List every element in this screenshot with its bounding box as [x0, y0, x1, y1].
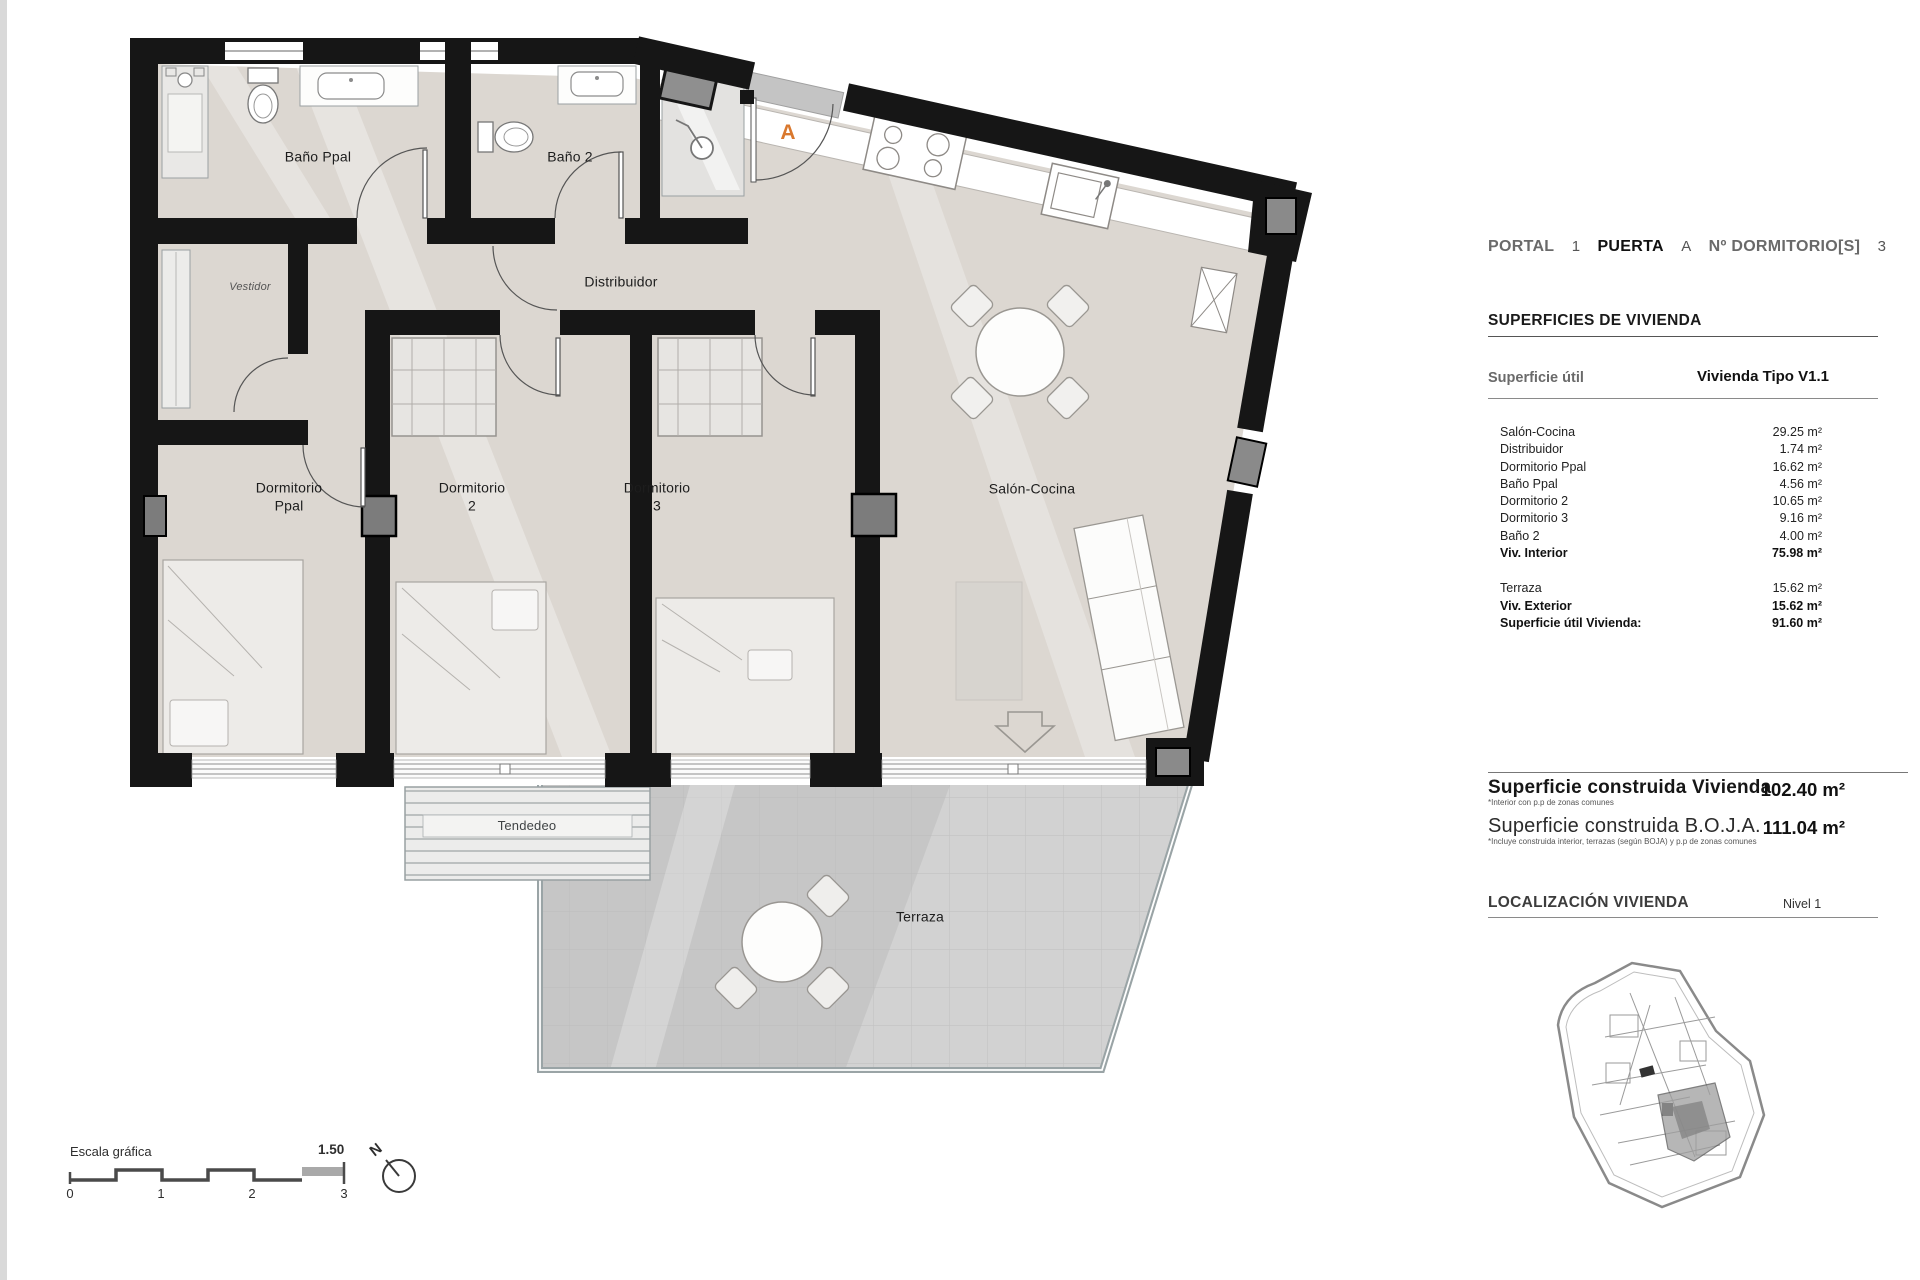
entrance-letter: A: [780, 120, 795, 146]
construida-row: Superficie construida Vivienda *Interior…: [1488, 777, 1908, 807]
portal-label: PORTAL: [1488, 238, 1554, 256]
construida-vivienda-value: 102.40 m²: [1761, 779, 1845, 801]
pillar: [1156, 748, 1190, 776]
superficies-title: SUPERFICIES DE VIVIENDA: [1488, 312, 1702, 330]
entrance-door-leaf: [751, 98, 756, 182]
construida-vivienda-note: *Interior con p.p de zonas comunes: [1488, 798, 1908, 807]
area-table: Salón-Cocina29.25 m² Distribuidor1.74 m²…: [1500, 424, 1822, 632]
floor-plan-drawing: [0, 0, 1440, 1240]
info-panel: PORTAL 1 PUERTA A Nº DORMITORIO[S] 3 SUP…: [1488, 0, 1913, 1280]
construida-section: Superficie construida Vivienda *Interior…: [1488, 772, 1908, 846]
scale-tick-1: 1: [157, 1186, 164, 1201]
scale-tick-2: 2: [248, 1186, 255, 1201]
room-label-terraza: Terraza: [896, 908, 944, 926]
room-label-dormitorio-3: Dormitorio 3: [624, 480, 691, 515]
room-label-distribuidor: Distribuidor: [584, 273, 657, 291]
rug: [956, 582, 1022, 700]
bed-dorm3: [656, 598, 834, 754]
room-label-salon-cocina: Salón-Cocina: [989, 480, 1075, 498]
table-row: Dormitorio Ppal16.62 m²: [1500, 459, 1822, 476]
pillar: [1266, 198, 1296, 234]
table-row-total: Viv. Exterior15.62 m²: [1500, 598, 1822, 615]
scale-bar-label: Escala gráfica: [70, 1144, 152, 1159]
vivienda-tipo-label: Vivienda Tipo V1.1: [1653, 368, 1873, 385]
floorplan-sheet: Baño Ppal Baño 2 Vestidor Distribuidor D…: [0, 0, 1920, 1280]
sink2-icon: [558, 66, 636, 104]
divider: [1488, 336, 1878, 337]
toilet2-icon: [478, 122, 533, 152]
dormitorios-value: 3: [1878, 238, 1886, 255]
room-label-tendedeo: Tendedeo: [498, 818, 557, 834]
table-row: Salón-Cocina29.25 m²: [1500, 424, 1822, 441]
divider: [1488, 917, 1878, 918]
site-plan-icon: [1510, 945, 1810, 1245]
scale-bar: [70, 1162, 344, 1184]
table-row: Dormitorio 210.65 m²: [1500, 493, 1822, 510]
room-label-bano-2: Baño 2: [547, 148, 593, 166]
room-label-vestidor: Vestidor: [229, 281, 271, 295]
construida-vivienda-label: Superficie construida Vivienda: [1488, 777, 1908, 799]
table-row: Baño 24.00 m²: [1500, 528, 1822, 545]
table-row: Baño Ppal4.56 m²: [1500, 476, 1822, 493]
scale-ratio: 1.50: [318, 1142, 344, 1157]
construida-row: Superficie construida B.O.J.A. *Incluye …: [1488, 815, 1908, 846]
terrace: [205, 785, 1190, 1240]
construida-boja-note: *Incluye construida interior, terrazas (…: [1488, 837, 1908, 846]
table-row: Dormitorio 39.16 m²: [1500, 510, 1822, 527]
room-label-bano-ppal: Baño Ppal: [285, 148, 351, 166]
puerta-value: A: [1681, 238, 1691, 255]
room-label-dormitorio-2: Dormitorio 2: [439, 480, 506, 515]
puerta-label: PUERTA: [1597, 238, 1663, 256]
table-row: Terraza15.62 m²: [1500, 580, 1822, 597]
dormitorios-label: Nº DORMITORIO[S]: [1709, 238, 1861, 256]
room-label-dormitorio-ppal: Dormitorio Ppal: [256, 480, 323, 515]
sink-icon: [300, 66, 418, 106]
north-compass-icon: [383, 1160, 415, 1192]
table-row: Distribuidor1.74 m²: [1500, 441, 1822, 458]
closet-dorm2: [392, 338, 496, 436]
superficie-util-label: Superficie útil: [1488, 370, 1584, 386]
nivel-label: Nivel 1: [1783, 897, 1821, 911]
scale-tick-0: 0: [66, 1186, 73, 1201]
table-row-total: Superficie útil Vivienda:91.60 m²: [1500, 615, 1822, 632]
closet-dorm3: [658, 338, 762, 436]
scale-tick-3: 3: [340, 1186, 347, 1201]
construida-boja-label: Superficie construida B.O.J.A.: [1488, 815, 1908, 838]
floor-plan: Baño Ppal Baño 2 Vestidor Distribuidor D…: [0, 0, 1440, 1280]
divider: [1488, 772, 1908, 773]
closet-vestidor: [162, 250, 190, 408]
table-row-total: Viv. Interior75.98 m²: [1500, 545, 1822, 562]
portal-value: 1: [1572, 238, 1580, 255]
bed-dorm2: [396, 582, 546, 754]
construida-boja-value: 111.04 m²: [1763, 817, 1845, 839]
divider: [1488, 398, 1878, 399]
bathtub-icon: [162, 66, 208, 178]
toilet-icon: [248, 68, 278, 123]
unit-header: PORTAL 1 PUERTA A Nº DORMITORIO[S] 3: [1488, 238, 1886, 256]
localizacion-title: LOCALIZACIÓN VIVIENDA: [1488, 894, 1689, 912]
table-gap: [1500, 562, 1822, 580]
bed-ppal: [163, 560, 303, 754]
